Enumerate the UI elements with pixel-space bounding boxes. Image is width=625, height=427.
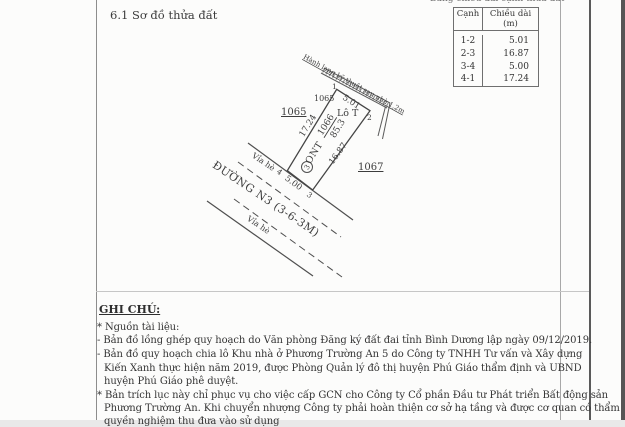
notes-line: - Bản đồ quy hoạch chia lô Khu nhà ở Phư… xyxy=(97,349,582,360)
vertex-2-label: 2 xyxy=(367,113,372,122)
notes-heading: GHI CHÚ: xyxy=(99,303,160,316)
document-page: 6.1 Sơ đồ thửa đất Bảng chiều dài cạnh t… xyxy=(0,0,625,420)
notes-line: Kiến Xanh thực hiện năm 2019, được Phòng… xyxy=(104,363,582,374)
notes-line: quyền nghiệm thu đưa vào sử dụng xyxy=(104,416,279,427)
vertex-1-label: 1 xyxy=(332,82,337,91)
notes-line: * Bản trích lục này chỉ phục vụ cho việc… xyxy=(97,390,608,401)
vertex-3-label: 3 xyxy=(305,190,314,200)
neighbor-parcel-left: 1065 xyxy=(281,107,306,118)
vertex-4-label: 4 xyxy=(275,167,284,177)
neighbor-parcel-left-small: 1065 xyxy=(314,94,334,103)
neighbor-parcel-right: 1067 xyxy=(358,162,383,173)
notes-line: * Nguồn tài liệu: xyxy=(97,322,179,333)
notes-line: huyện Phú Giáo phê duyệt. xyxy=(104,376,238,387)
notes-line: Phương Trường An. Khi chuyển nhượng Công… xyxy=(104,403,620,414)
notes-line: - Bản đồ lồng ghép quy hoạch do Văn phòn… xyxy=(97,335,592,346)
